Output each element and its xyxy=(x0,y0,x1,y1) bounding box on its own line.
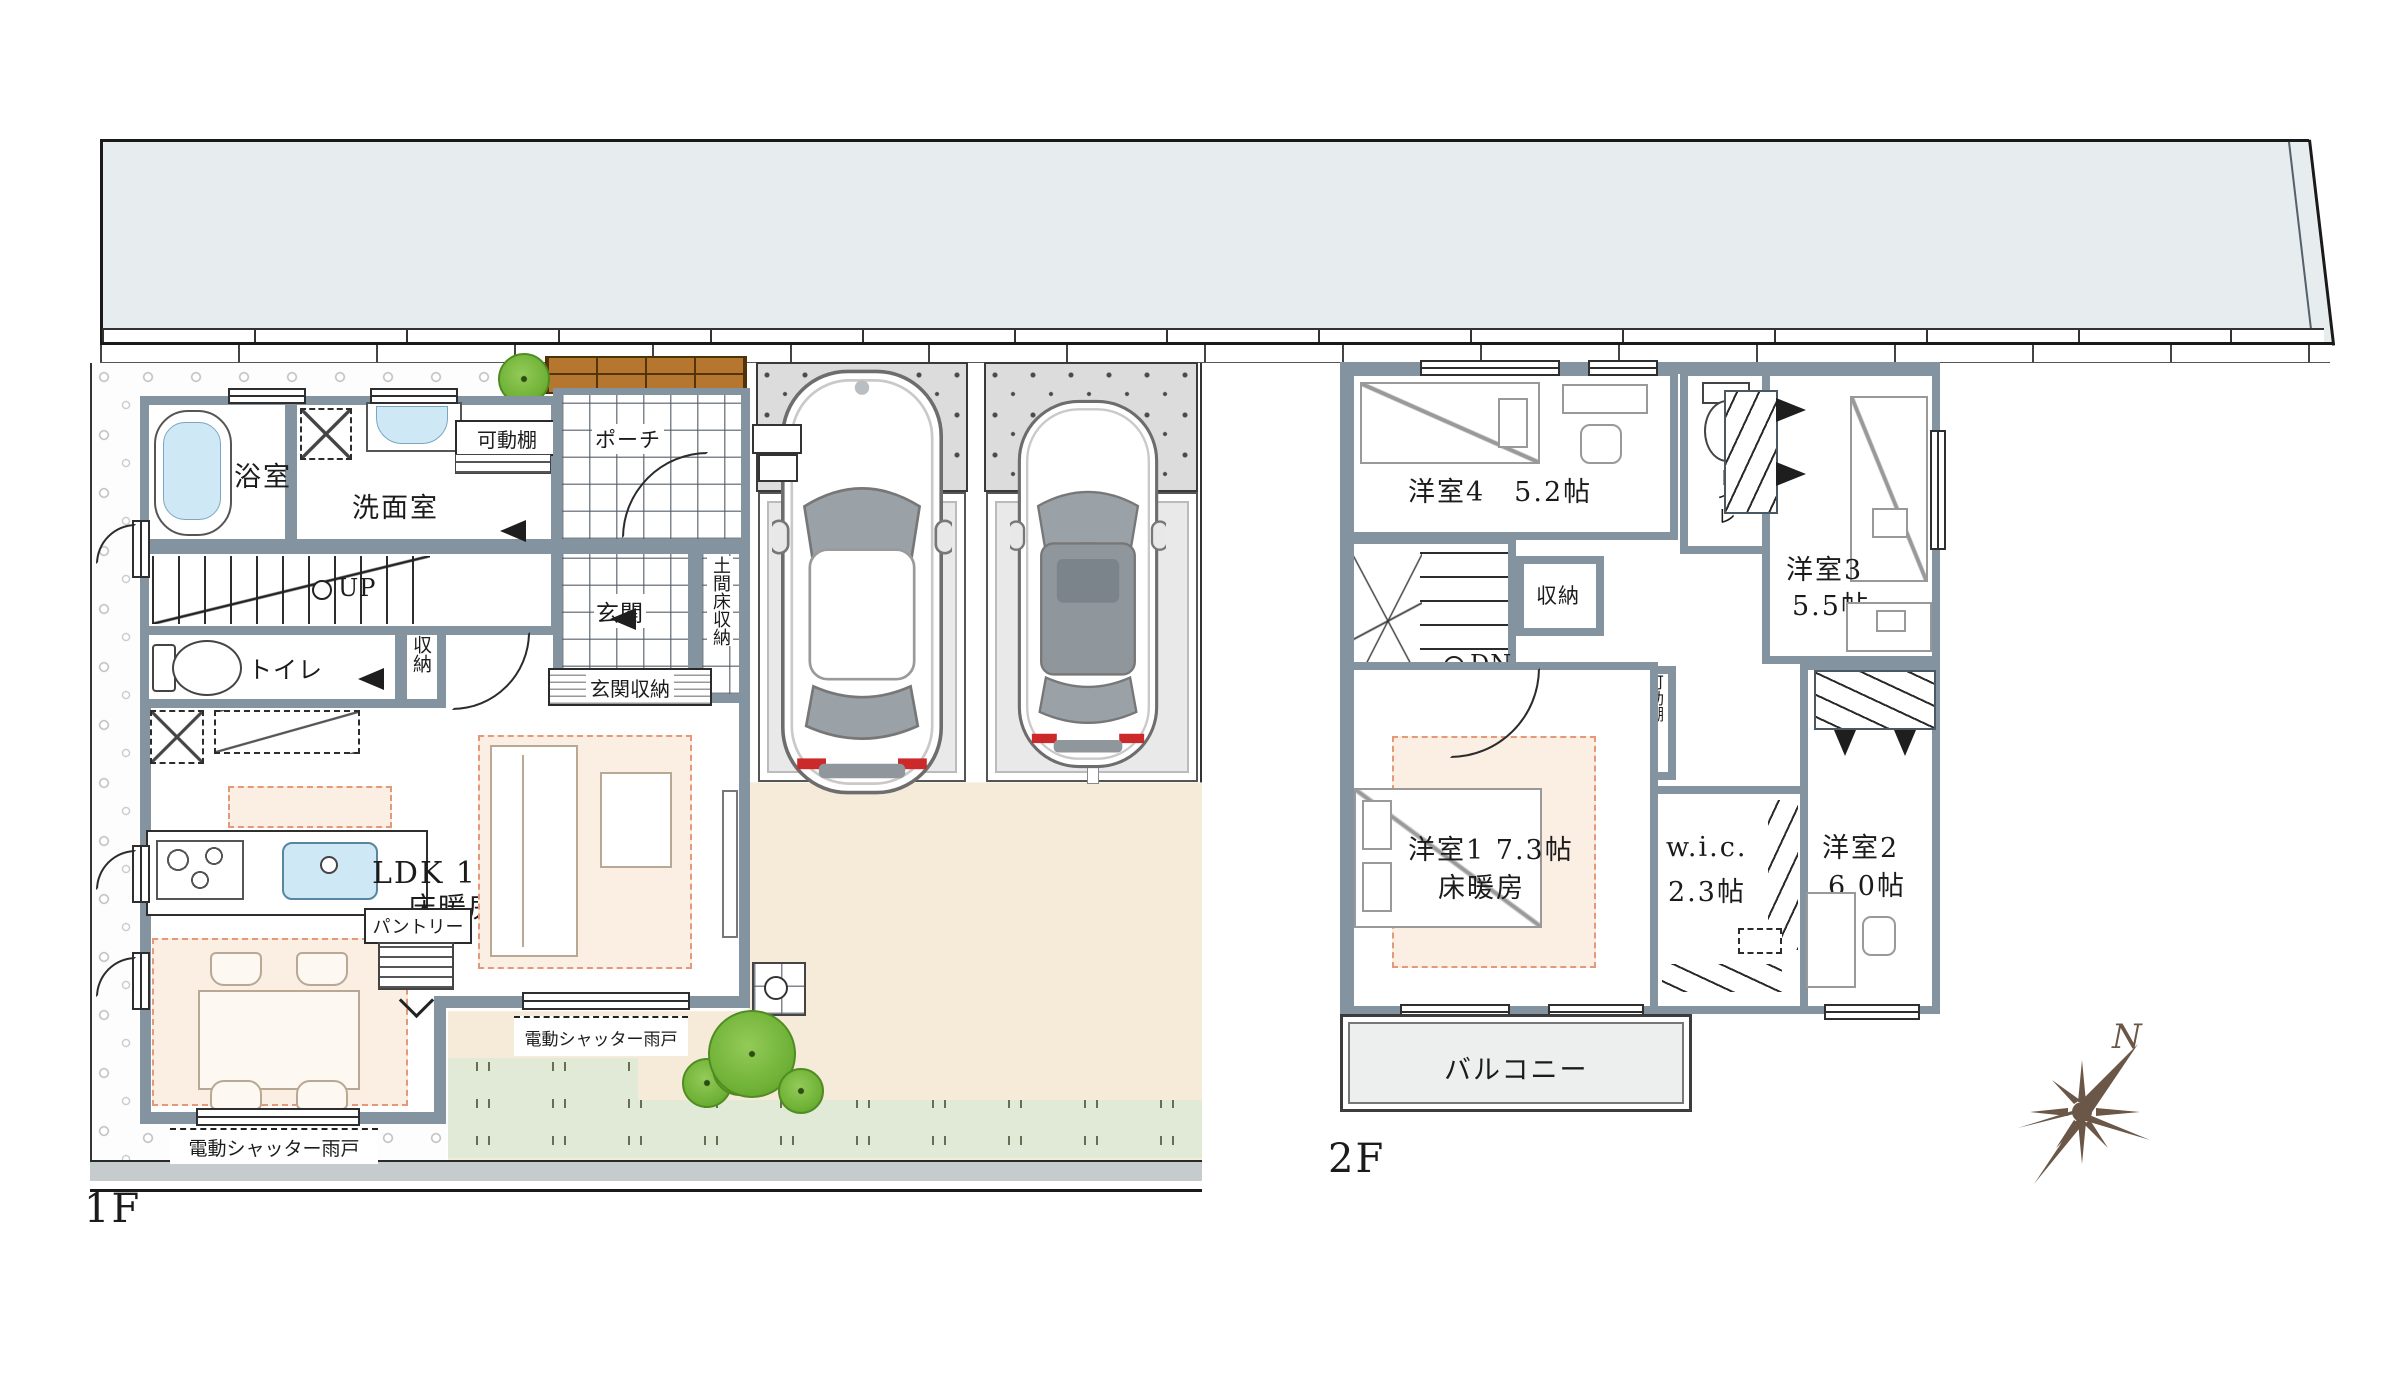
toilet-1f-label: トイレ xyxy=(248,650,323,685)
car-2 xyxy=(1010,392,1166,776)
floor2-title: 2F xyxy=(1328,1136,1385,1182)
ldk-wall-east xyxy=(739,545,750,1008)
floor-heat-kitchen xyxy=(228,786,392,828)
movable-shelf-1f-label: 可動棚 xyxy=(455,420,559,456)
f2-window-room3-east xyxy=(1930,430,1946,550)
f2-room3-pillow xyxy=(1872,508,1908,538)
f2-room4-pillow xyxy=(1498,398,1528,448)
f2-window-room2-south xyxy=(1824,1004,1920,1020)
floor-plan-canvas: 浴室 洗面室 可動棚 ポーチ UP トイレ 収納 玄関 土間床収納 玄関収納 L… xyxy=(0,0,2400,1400)
f2-wic-hangers-bottom xyxy=(1662,964,1782,992)
f2-wic-label: w.i.c. xyxy=(1666,832,1747,863)
dining-chair-1 xyxy=(210,952,262,986)
f2-room2-hanger-tri-2 xyxy=(1894,730,1916,756)
f2-room2-hanger-tri-1 xyxy=(1834,730,1856,756)
f2-room3-label: 洋室3 xyxy=(1786,548,1863,587)
doma-storage-label: 土間床収納 xyxy=(707,556,733,646)
washer-space xyxy=(300,408,352,460)
f2-room3-hanger-tri-1 xyxy=(1776,398,1806,422)
bath-slide-door xyxy=(500,520,526,542)
kitchen-counter-long xyxy=(214,710,360,754)
compass-rose: N xyxy=(1990,1008,2210,1218)
window-dining-south xyxy=(196,1108,360,1126)
stairs-up-dot xyxy=(312,580,332,600)
f2-room2-closet xyxy=(1814,670,1936,730)
toilet-1f-bowl xyxy=(172,640,242,696)
sofa xyxy=(490,745,578,957)
site-gravel-left xyxy=(90,363,138,1185)
shutter-label-dining: 電動シャッター雨戸 xyxy=(170,1128,378,1164)
washroom-label: 洗面室 xyxy=(352,486,439,525)
garden-tree-small-3 xyxy=(778,1068,824,1114)
f2-wic-size: 2.3帖 xyxy=(1668,870,1746,909)
lawn-lower xyxy=(448,1100,1202,1158)
genkan-storage-label: 玄関収納 xyxy=(548,668,712,706)
movable-shelf-1f xyxy=(455,454,551,474)
window-bath-north xyxy=(228,388,306,404)
road-border-top xyxy=(100,139,2309,142)
bathtub-water xyxy=(163,422,221,520)
pantry-label: パントリー xyxy=(364,908,472,944)
genkan-slide-door xyxy=(610,608,636,630)
f2-room3-hanger-tri-2 xyxy=(1776,462,1806,486)
kitchen-stove xyxy=(156,840,244,900)
shutter-label-living: 電動シャッター雨戸 xyxy=(514,1016,688,1056)
road-border-left xyxy=(100,139,103,345)
stairs-1f-diagonal xyxy=(152,556,430,624)
site-sidewalk-edge xyxy=(90,1181,1202,1192)
dining-chair-4 xyxy=(296,1080,348,1110)
meter-box-2 xyxy=(758,454,798,482)
wash-basin-bowl xyxy=(376,406,448,444)
site-gravel-top xyxy=(136,363,556,399)
f2-room4-desk xyxy=(1562,384,1648,414)
f2-room1-pillow-1 xyxy=(1362,800,1392,850)
dining-chair-3 xyxy=(210,1080,262,1110)
f2-window-room4-north xyxy=(1420,360,1560,376)
window-living-south xyxy=(522,992,690,1010)
closet-1f-label: 収納 xyxy=(408,635,435,673)
step-pad-circle xyxy=(764,976,788,1000)
sidewalk-strip xyxy=(100,345,2330,363)
toilet-slide-door xyxy=(358,668,384,690)
f2-room3-closet xyxy=(1724,390,1778,514)
dining-chair-2 xyxy=(296,952,348,986)
porch-label: ポーチ xyxy=(592,424,664,454)
f2-room3-monitor xyxy=(1876,610,1906,632)
f2-room4-label: 洋室4 5.2帖 xyxy=(1408,470,1592,509)
coffee-table xyxy=(600,772,672,868)
up-label: UP xyxy=(338,574,376,602)
ldk-wall-step xyxy=(434,1006,446,1124)
compass-north-text: N xyxy=(2111,1017,2143,1057)
meter-box-1 xyxy=(752,424,802,454)
f2-room2-label: 洋室2 xyxy=(1822,826,1899,865)
ldk-door-arc xyxy=(452,632,530,710)
floor1-title: 1F xyxy=(84,1186,141,1232)
dining-table xyxy=(198,990,360,1090)
bath-label: 浴室 xyxy=(234,455,292,494)
f2-room2-chair xyxy=(1862,916,1896,956)
tv-board xyxy=(722,790,738,938)
f2-closet-label: 収納 xyxy=(1536,580,1580,610)
f2-wic-dash xyxy=(1738,928,1782,954)
sofa-seat-line xyxy=(522,755,524,947)
f2-room4-chair xyxy=(1580,424,1622,464)
f2-room1-pillow-2 xyxy=(1362,862,1392,912)
kitchen-counter-corner xyxy=(150,710,204,764)
f2-room2-desk xyxy=(1806,892,1856,988)
road-band xyxy=(100,140,2332,345)
f2-window-room4-north2 xyxy=(1588,360,1658,376)
genkan-storage-text: 玄関収納 xyxy=(586,673,674,702)
kitchen-faucet xyxy=(320,856,338,874)
window-wash-north xyxy=(370,388,458,404)
balcony-label: バルコニー xyxy=(1444,1048,1588,1087)
f2-room1-heating: 床暖房 xyxy=(1438,866,1525,905)
f2-room1-label: 洋室1 7.3帖 xyxy=(1408,828,1574,867)
